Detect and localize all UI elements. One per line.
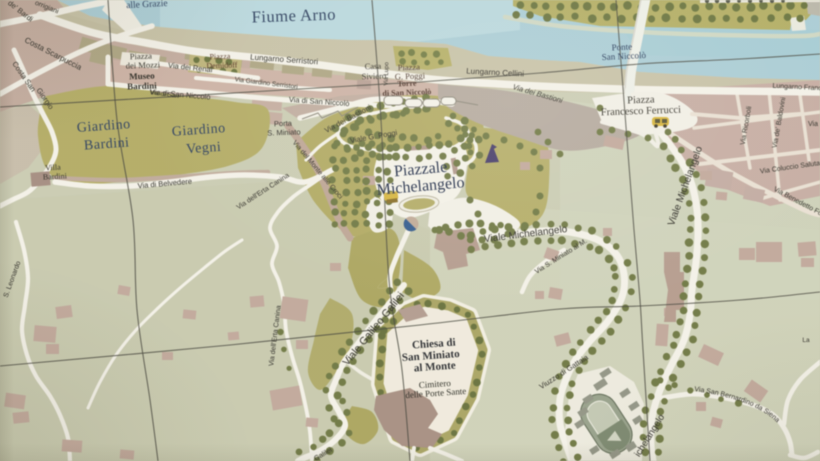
svg-text:Vegni: Vegni: [186, 140, 222, 157]
svg-text:di San Niccolò: di San Niccolò: [382, 87, 431, 98]
svg-text:Siviero: Siviero: [361, 71, 386, 82]
svg-text:La: La: [802, 337, 810, 344]
svg-text:dei Mozzi: dei Mozzi: [126, 59, 161, 70]
svg-text:Via: Via: [808, 121, 818, 128]
svg-text:Fiume Arno: Fiume Arno: [251, 5, 336, 27]
svg-text:Bardini: Bardini: [84, 135, 130, 153]
svg-text:Bardini: Bardini: [43, 171, 68, 181]
svg-text:Via Lupo: Via Lupo: [384, 61, 391, 85]
svg-text:Casa: Casa: [364, 61, 381, 72]
svg-text:S. Miniato: S. Miniato: [267, 127, 301, 137]
